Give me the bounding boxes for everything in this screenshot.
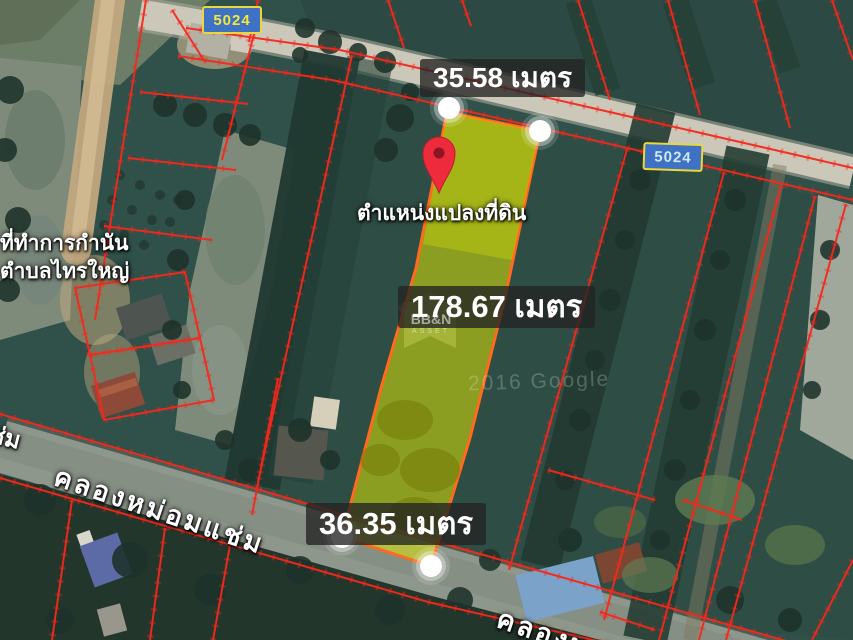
satellite-map-view: 35.58 เมตร 178.67 เมตร 36.35 เมตร ตำแหน่… [0, 0, 853, 640]
measurement-label-bottom-width: 36.35 เมตร [306, 503, 486, 545]
route-sign-5024-top: 5024 [202, 6, 262, 34]
brand-watermark-text: BB&N [404, 311, 458, 327]
imagery-watermark: 2016 Google [468, 368, 611, 397]
measurement-label-top-width: 35.58 เมตร [420, 59, 585, 97]
subdistrict-office-label: ที่ทำการกำนัน ตำบลไทรใหญ่ [0, 230, 129, 287]
subdistrict-office-line2: ตำบลไทรใหญ่ [0, 258, 129, 286]
subdistrict-office-line1: ที่ทำการกำนัน [0, 230, 129, 258]
route-sign-5024-right: 5024 [643, 142, 704, 172]
brand-watermark-subtext: ASSET [404, 328, 458, 335]
pin-caption: ตำแหน่งแปลงที่ดิน [357, 197, 526, 230]
